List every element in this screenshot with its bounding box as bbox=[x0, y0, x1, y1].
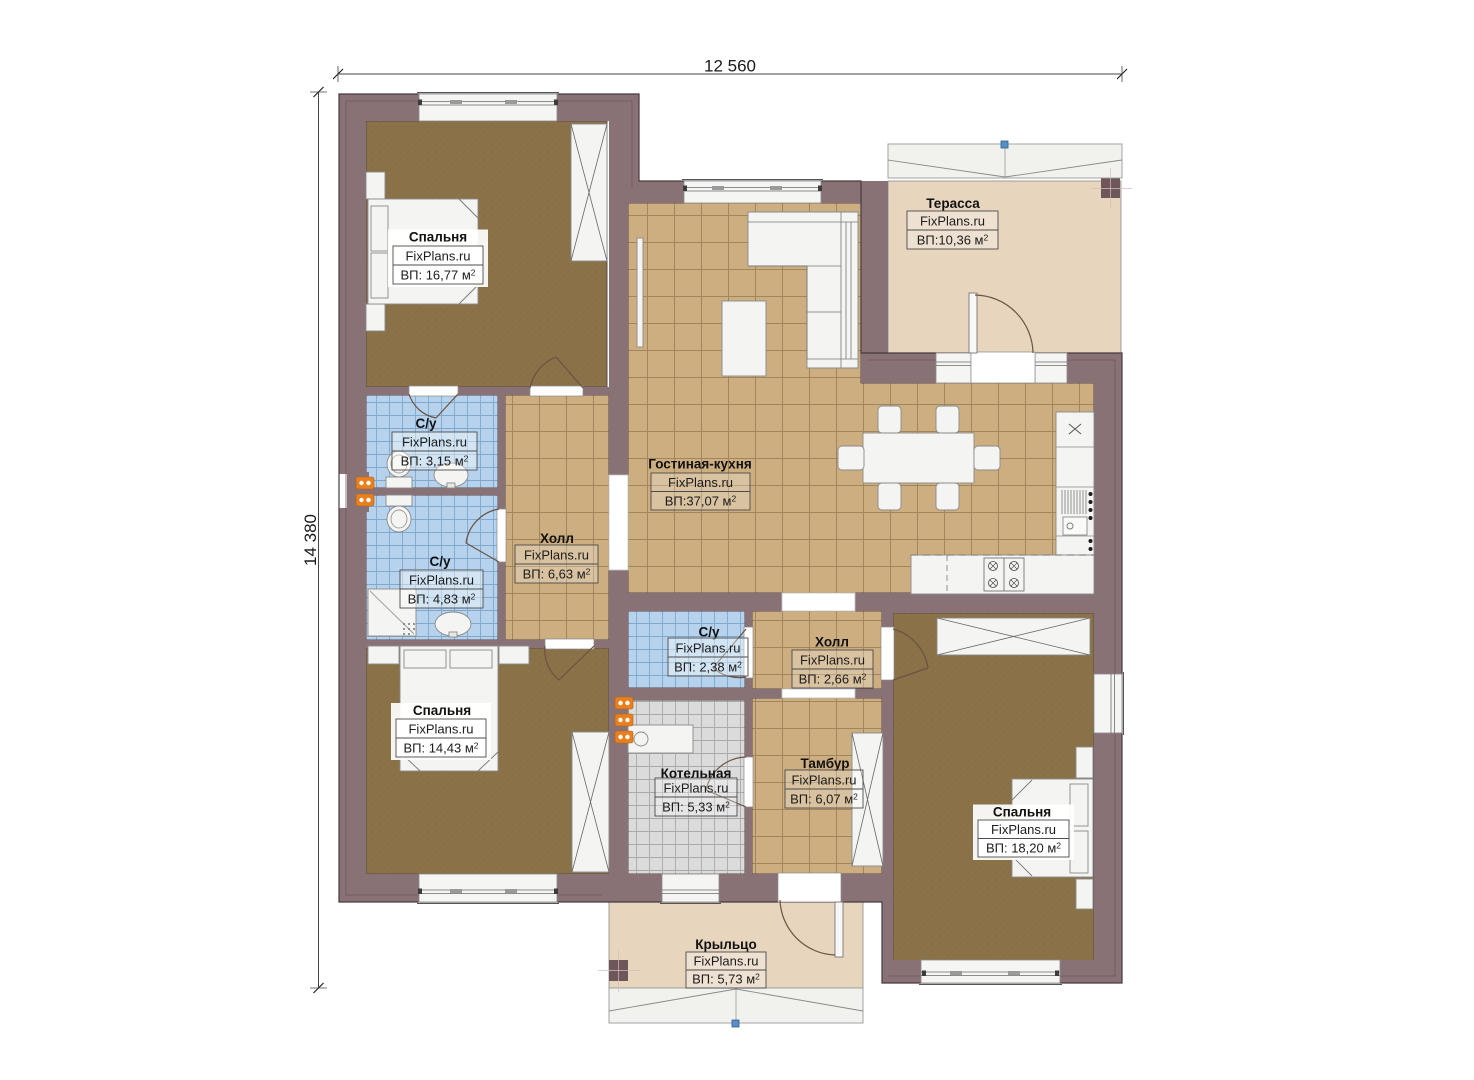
svg-text:ВП: 6,07 м2: ВП: 6,07 м2 bbox=[790, 792, 858, 807]
svg-text:ВП: 2,38 м2: ВП: 2,38 м2 bbox=[674, 660, 742, 675]
svg-text:FixPlans.ru: FixPlans.ru bbox=[668, 475, 733, 490]
svg-text:ВП: 16,77 м2: ВП: 16,77 м2 bbox=[400, 268, 475, 283]
svg-text:ВП: 3,15 м2: ВП: 3,15 м2 bbox=[401, 454, 469, 469]
svg-text:ВП: 4,83 м2: ВП: 4,83 м2 bbox=[408, 592, 476, 607]
svg-text:ВП: 5,33 м2: ВП: 5,33 м2 bbox=[662, 800, 730, 815]
svg-text:ВП:37,07 м2: ВП:37,07 м2 bbox=[665, 494, 737, 509]
svg-text:14 380: 14 380 bbox=[301, 514, 320, 566]
svg-text:FixPlans.ru: FixPlans.ru bbox=[800, 653, 865, 668]
svg-text:12 560: 12 560 bbox=[704, 57, 756, 76]
svg-text:ВП:10,36 м2: ВП:10,36 м2 bbox=[917, 233, 989, 248]
svg-text:Спальня: Спальня bbox=[413, 703, 471, 718]
svg-text:ВП: 6,63 м2: ВП: 6,63 м2 bbox=[523, 567, 591, 582]
svg-text:С/у: С/у bbox=[698, 625, 720, 640]
svg-text:ВП: 18,20 м2: ВП: 18,20 м2 bbox=[986, 841, 1061, 856]
svg-text:FixPlans.ru: FixPlans.ru bbox=[524, 548, 589, 563]
svg-text:FixPlans.ru: FixPlans.ru bbox=[991, 822, 1056, 837]
svg-text:ВП: 14,43 м2: ВП: 14,43 м2 bbox=[403, 741, 478, 756]
svg-text:ВП: 5,73 м2: ВП: 5,73 м2 bbox=[692, 972, 760, 987]
svg-text:FixPlans.ru: FixPlans.ru bbox=[791, 773, 856, 788]
svg-text:FixPlans.ru: FixPlans.ru bbox=[693, 954, 758, 969]
svg-text:Холл: Холл bbox=[815, 635, 849, 650]
svg-text:FixPlans.ru: FixPlans.ru bbox=[402, 435, 467, 450]
svg-text:Гостиная-кухня: Гостиная-кухня bbox=[648, 457, 751, 472]
svg-text:Спальня: Спальня bbox=[993, 805, 1051, 820]
svg-text:Холл: Холл bbox=[540, 531, 574, 546]
svg-text:FixPlans.ru: FixPlans.ru bbox=[405, 249, 470, 264]
svg-text:Тамбур: Тамбур bbox=[801, 756, 850, 771]
svg-text:FixPlans.ru: FixPlans.ru bbox=[920, 214, 985, 229]
svg-text:Терасса: Терасса bbox=[926, 196, 980, 211]
svg-text:Спальня: Спальня bbox=[409, 230, 467, 245]
svg-text:С/у: С/у bbox=[415, 416, 437, 431]
svg-text:Крыльцо: Крыльцо bbox=[695, 937, 756, 952]
svg-text:FixPlans.ru: FixPlans.ru bbox=[408, 722, 473, 737]
svg-text:FixPlans.ru: FixPlans.ru bbox=[675, 641, 740, 656]
svg-text:ВП: 2,66 м2: ВП: 2,66 м2 bbox=[799, 672, 867, 687]
svg-text:FixPlans.ru: FixPlans.ru bbox=[663, 781, 728, 796]
svg-text:С/у: С/у bbox=[429, 554, 451, 569]
svg-text:FixPlans.ru: FixPlans.ru bbox=[409, 573, 474, 588]
